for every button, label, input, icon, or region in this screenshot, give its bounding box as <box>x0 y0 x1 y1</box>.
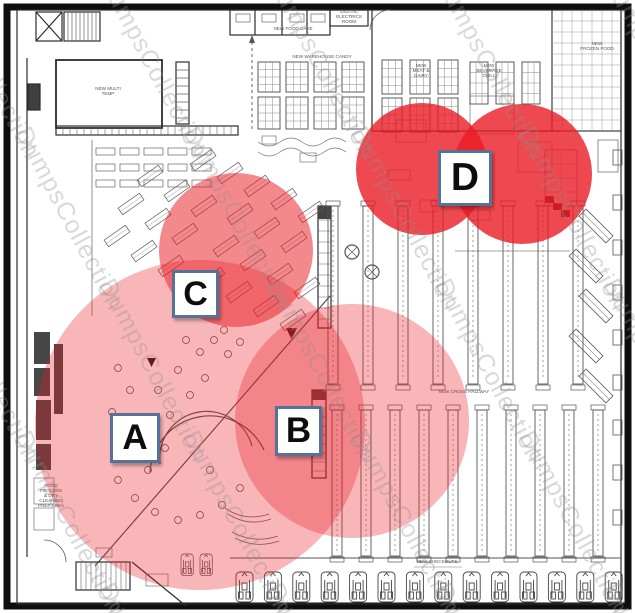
marker-b[interactable]: B <box>275 406 322 456</box>
marker-c[interactable]: C <box>172 270 219 318</box>
plan-label: NEW CHECKOUTS <box>417 559 458 564</box>
coverage-map: NEW MULTITEMPNEW FOOD CASEDIGITALELECTRI… <box>0 0 635 613</box>
plan-label: NEW WAREHOUSE CANDY <box>292 54 351 59</box>
marker-a[interactable]: A <box>110 413 160 463</box>
marker-d[interactable]: D <box>438 150 492 206</box>
coverage-circle-right <box>235 304 469 538</box>
floor-plan: NEW MULTITEMPNEW FOOD CASEDIGITALELECTRI… <box>0 0 635 613</box>
plan-label: NEW FOOD CASE <box>273 26 312 31</box>
